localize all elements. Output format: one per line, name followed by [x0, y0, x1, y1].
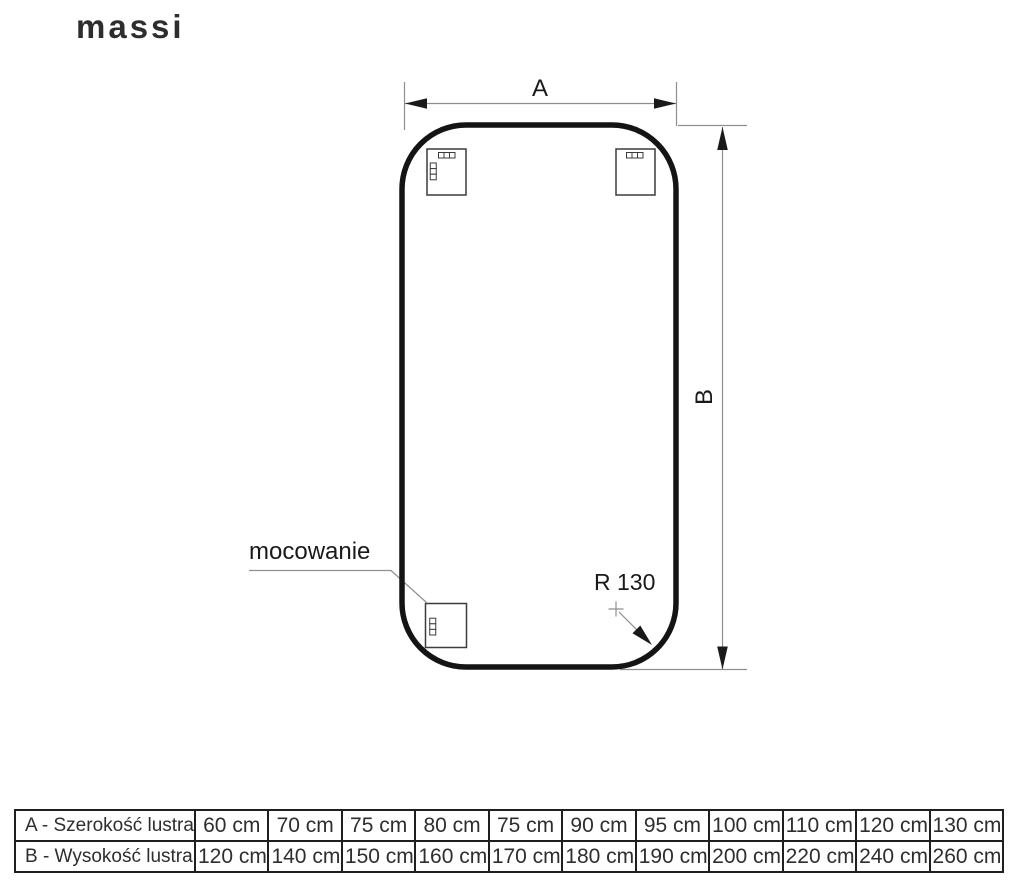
width-value: 120 cm [856, 810, 929, 841]
height-value: 170 cm [489, 841, 562, 872]
height-value: 120 cm [195, 841, 268, 872]
height-value: 260 cm [930, 841, 1003, 872]
height-value: 160 cm [415, 841, 488, 872]
table-row-height: B - Wysokość lustra 120 cm 140 cm 150 cm… [15, 841, 1003, 872]
width-value: 100 cm [709, 810, 782, 841]
row-label-height: B - Wysokość lustra [15, 841, 195, 872]
size-table: A - Szerokość lustra 60 cm 70 cm 75 cm 8… [14, 809, 1004, 873]
height-value: 150 cm [342, 841, 415, 872]
height-value: 200 cm [709, 841, 782, 872]
width-value: 110 cm [783, 810, 856, 841]
dim-b-label: B [691, 389, 718, 405]
height-value: 240 cm [856, 841, 929, 872]
width-value: 95 cm [636, 810, 709, 841]
height-value: 180 cm [562, 841, 635, 872]
mirror-dimension-diagram: A B mocowanie R 130 [0, 0, 1020, 800]
bracket-top-left [427, 149, 466, 195]
table-row-width: A - Szerokość lustra 60 cm 70 cm 75 cm 8… [15, 810, 1003, 841]
dim-b-arrowhead-down [717, 647, 728, 670]
dim-a-label: A [532, 75, 548, 102]
bracket-top-right [616, 149, 655, 195]
height-value: 140 cm [268, 841, 341, 872]
mounting-label: mocowanie [249, 538, 370, 565]
dim-a-arrowhead-right [654, 98, 676, 109]
dim-a-arrowhead-left [405, 98, 427, 109]
height-value: 220 cm [783, 841, 856, 872]
row-label-width: A - Szerokość lustra [15, 810, 195, 841]
width-value: 70 cm [268, 810, 341, 841]
width-value: 75 cm [489, 810, 562, 841]
bracket-bottom-left-slot-vertical [430, 618, 436, 635]
height-value: 190 cm [636, 841, 709, 872]
page: massi [0, 0, 1020, 887]
dim-b-arrowhead-up [717, 127, 728, 150]
bracket-bottom-left [426, 604, 467, 648]
bracket-top-right-slot-horizontal [627, 153, 644, 159]
width-value: 90 cm [562, 810, 635, 841]
width-value: 80 cm [415, 810, 488, 841]
bracket-top-left-slot-vertical [430, 163, 436, 180]
width-value: 130 cm [930, 810, 1003, 841]
radius-label: R 130 [594, 569, 655, 595]
bracket-top-left-slot-horizontal [439, 153, 456, 159]
width-value: 75 cm [342, 810, 415, 841]
width-value: 60 cm [195, 810, 268, 841]
